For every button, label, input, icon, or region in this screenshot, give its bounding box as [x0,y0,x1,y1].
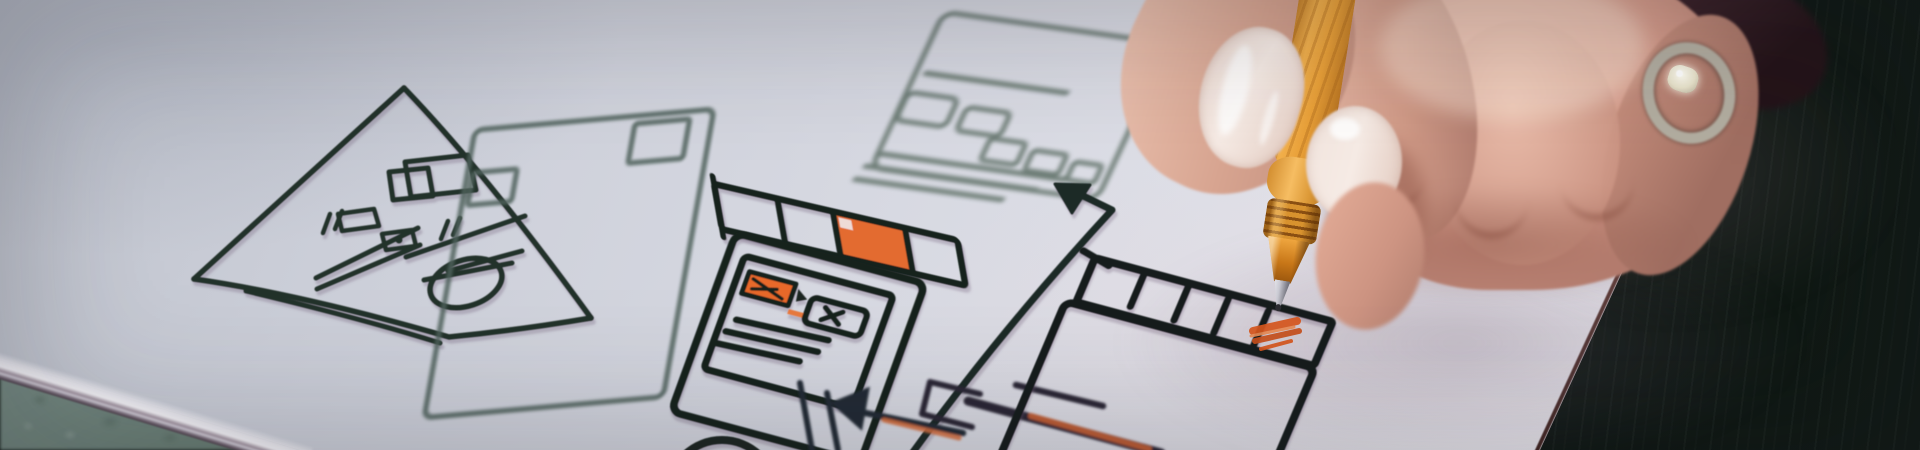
index-nail-highlight [1330,118,1360,140]
photo-stage [0,0,1920,450]
pen-cone [1260,235,1312,286]
pen-ballpoint [1275,304,1282,312]
hand [0,0,1920,450]
ring-sparkle [1676,70,1683,77]
